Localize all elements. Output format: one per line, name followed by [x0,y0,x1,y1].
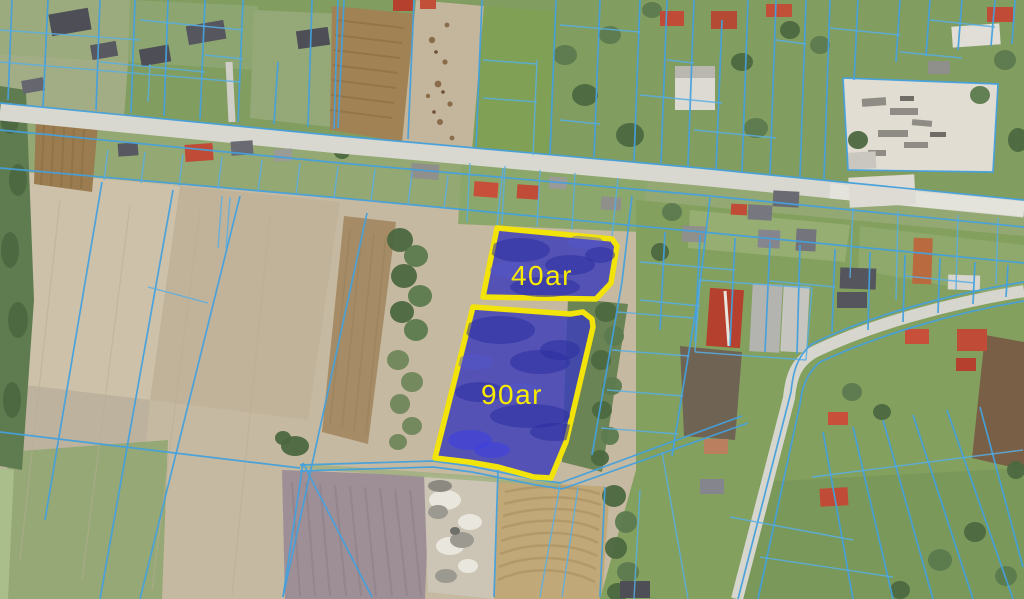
aerial-map-container: 40ar 90ar [0,0,1024,599]
parcel-40ar-label: 40ar [511,260,573,291]
warehouse-red [706,288,744,348]
warehouse-gray [749,283,809,352]
aerial-map: 40ar 90ar [0,0,1024,599]
parcel-90ar-label: 90ar [481,379,543,410]
